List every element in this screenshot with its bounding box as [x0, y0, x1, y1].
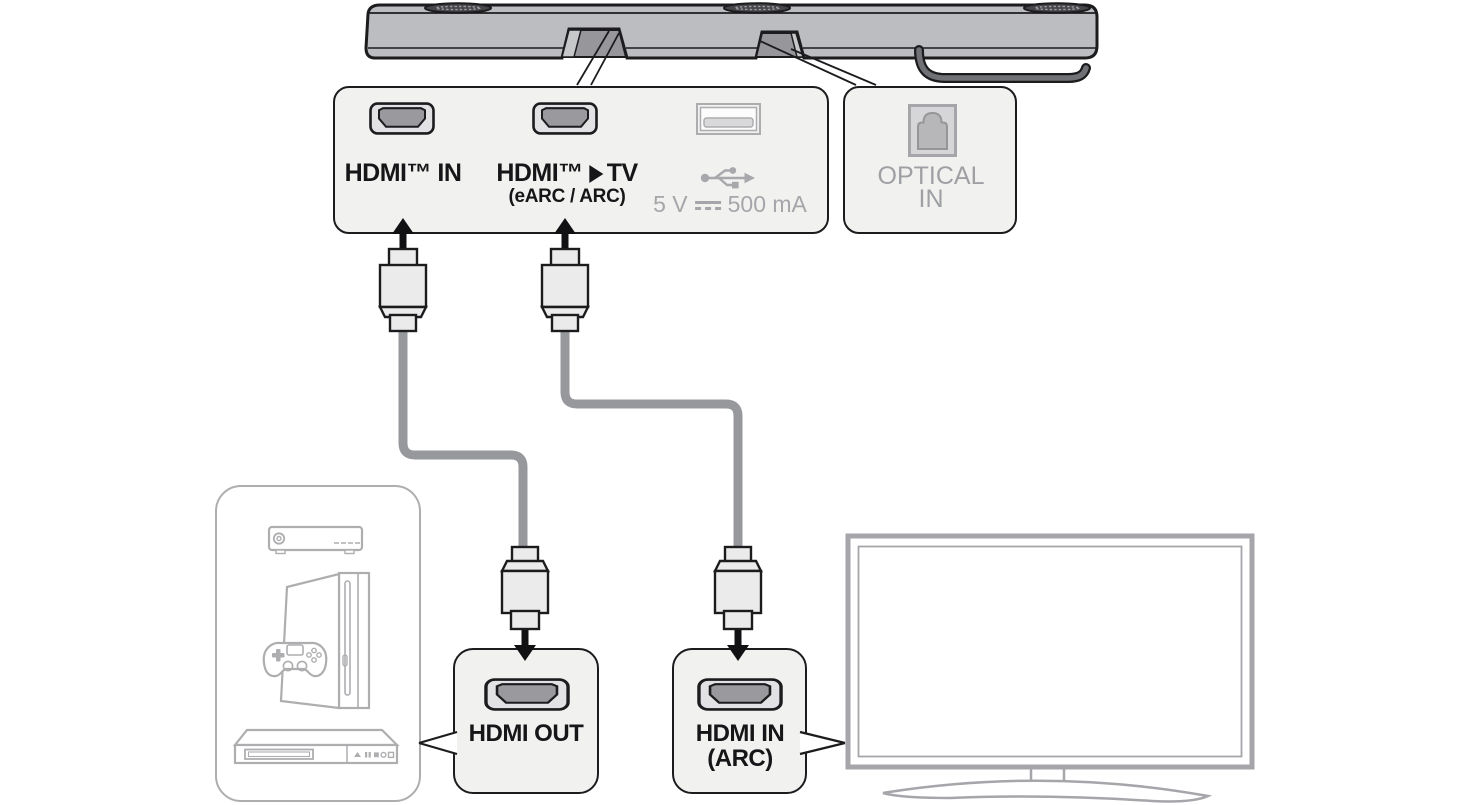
tv-frame [848, 536, 1252, 767]
hdmi-plug-connector [502, 547, 548, 629]
soundbar-foot-icon [724, 3, 790, 13]
hdmi-in-arc-label-line2: (ARC) [707, 745, 772, 773]
soundbar-hdmi-recess [562, 30, 626, 57]
soundbar [366, 3, 1097, 78]
power-cord [919, 50, 1086, 78]
tv-icon [848, 536, 1252, 801]
soundbar-optical-recess [756, 33, 803, 57]
tv-screen [859, 547, 1242, 757]
hdmi-port-icon [532, 102, 598, 135]
tv-stand-base [883, 781, 1208, 802]
usb-power-current: 500 mA [728, 191, 807, 218]
hdmi-in-arc-port-box: HDMI IN (ARC) [672, 648, 807, 794]
hdmi-port-icon [369, 102, 435, 135]
hdmi-out-label: HDMI OUT [469, 720, 584, 748]
soundbar-foot-icon [1024, 3, 1090, 13]
hdmi-plug-connector [380, 249, 426, 331]
disc-player-icon [235, 730, 397, 763]
hdmi-in-label: HDMI™ IN [345, 159, 462, 188]
usb-power-volts: 5 V [653, 191, 688, 218]
hdmi-out-box-pointer [419, 731, 457, 755]
game-console-icon [281, 573, 369, 708]
connection-diagram: HDMI™ IN HDMI™ TV (eARC / ARC) 5 V 500 m… [0, 0, 1465, 805]
optical-in-label-line2: IN [919, 185, 944, 214]
soundbar-ports-panel: HDMI™ IN HDMI™ TV (eARC / ARC) 5 V 500 m… [333, 86, 829, 234]
hdmi-in-arc-label-line1: HDMI IN [696, 720, 785, 748]
soundbar-foot-icon [425, 3, 491, 13]
dc-symbol-icon [695, 199, 721, 212]
callout-lines [577, 31, 876, 85]
hdmi-tv-label: HDMI™ TV [496, 159, 637, 188]
hdmi-plug-connector [715, 547, 761, 629]
hdmi-out-port-box: HDMI OUT [453, 648, 599, 794]
usb-trident-icon [699, 164, 757, 190]
set-top-box-icon [269, 527, 362, 554]
hdmi-tv-label-prefix: HDMI™ [496, 159, 582, 188]
usb-power-label: 5 V 500 mA [653, 191, 807, 218]
tv-stand-neck [1031, 763, 1064, 786]
hdmi-port-icon [697, 678, 783, 711]
external-devices-illustration [217, 487, 419, 800]
hdmi-port-icon [484, 678, 570, 711]
optical-in-panel: OPTICAL IN [843, 86, 1017, 234]
hdmi-tv-label-suffix: TV [607, 159, 638, 188]
usb-port-icon [696, 103, 761, 135]
optical-port-icon [908, 104, 957, 157]
right-arrow-icon [590, 165, 604, 183]
earc-arc-label: (eARC / ARC) [508, 186, 625, 208]
external-devices-box [215, 485, 421, 802]
hdmi-plug-connector [542, 249, 588, 331]
hdmi-cable [403, 328, 738, 552]
